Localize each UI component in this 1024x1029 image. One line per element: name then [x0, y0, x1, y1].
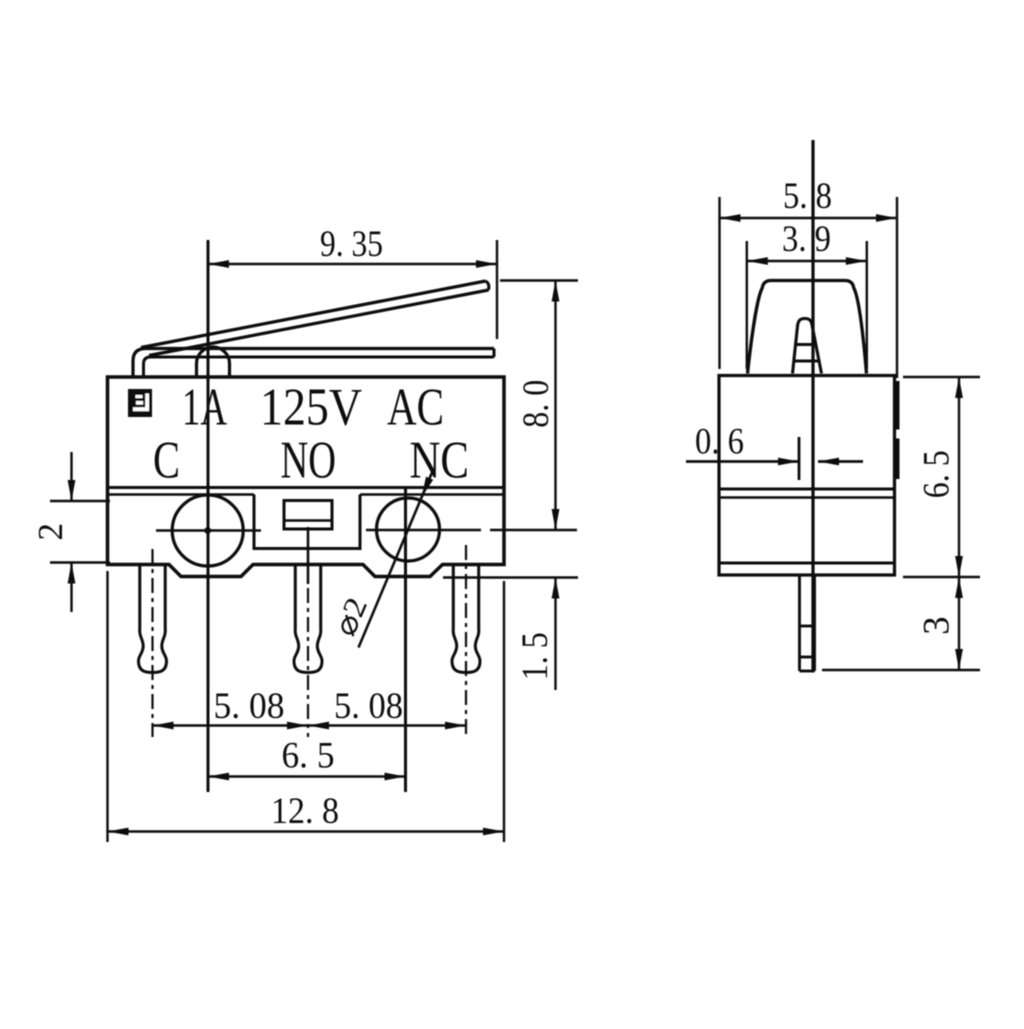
svg-text:2: 2: [31, 523, 70, 541]
svg-text:NC: NC: [410, 432, 470, 490]
svg-text:9. 35: 9. 35: [320, 224, 383, 265]
svg-text:1A: 1A: [182, 379, 227, 437]
svg-text:6. 5: 6. 5: [917, 450, 958, 498]
svg-text:5. 08: 5. 08: [334, 686, 403, 727]
svg-text:125V: 125V: [260, 379, 362, 437]
svg-text:NO: NO: [281, 432, 337, 490]
svg-text:6. 5: 6. 5: [282, 736, 335, 777]
svg-text:C: C: [153, 432, 180, 490]
svg-text:8. 0: 8. 0: [516, 380, 557, 428]
svg-text:0. 6: 0. 6: [695, 422, 744, 463]
svg-text:12. 8: 12. 8: [271, 791, 339, 832]
svg-text:3: 3: [917, 616, 958, 635]
svg-text:1. 5: 1. 5: [515, 632, 556, 680]
svg-text:AC: AC: [387, 379, 444, 437]
svg-text:5. 8: 5. 8: [783, 176, 832, 217]
svg-text:3. 9: 3. 9: [782, 219, 831, 260]
svg-text:5. 08: 5. 08: [214, 686, 285, 727]
